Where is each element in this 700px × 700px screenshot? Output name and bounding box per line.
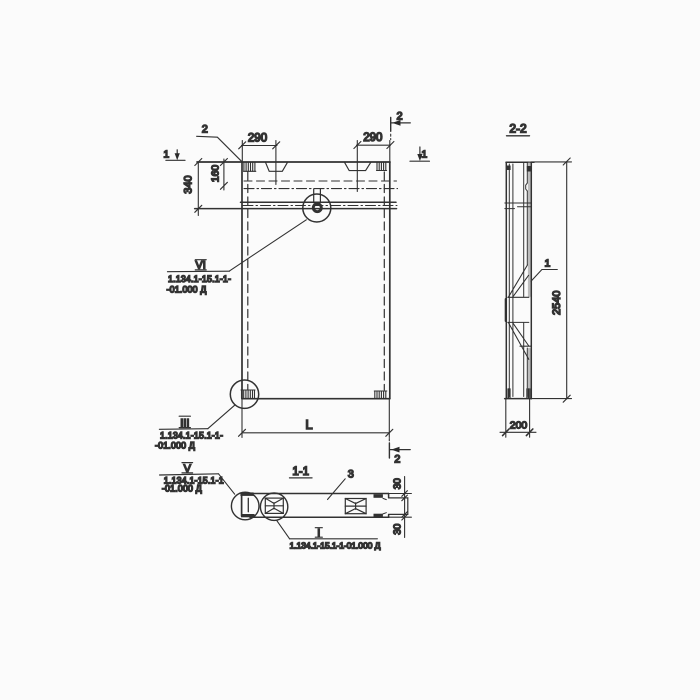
svg-text:290: 290: [363, 132, 382, 144]
svg-text:L: L: [305, 417, 312, 432]
svg-text:1.134.1-15.1-1-01.000 Д: 1.134.1-15.1-1-01.000 Д: [290, 540, 381, 550]
svg-text:30: 30: [392, 478, 403, 490]
svg-text:1: 1: [544, 258, 550, 270]
svg-text:1-1: 1-1: [292, 466, 309, 478]
svg-text:-01.000 Д: -01.000 Д: [167, 285, 207, 295]
svg-text:-01.000 Д: -01.000 Д: [155, 441, 195, 451]
svg-text:2: 2: [394, 454, 400, 466]
svg-text:160: 160: [209, 165, 221, 183]
svg-text:2-2: 2-2: [509, 122, 527, 136]
svg-text:340: 340: [183, 175, 195, 193]
svg-text:290: 290: [248, 133, 267, 145]
svg-text:2: 2: [202, 124, 208, 136]
svg-text:200: 200: [510, 419, 528, 431]
svg-text:1.134.1-15.1-1-: 1.134.1-15.1-1-: [168, 274, 231, 284]
svg-text:2: 2: [396, 111, 402, 123]
svg-text:30: 30: [392, 523, 403, 535]
svg-text:1.134.1-15.1-1-: 1.134.1-15.1-1-: [160, 431, 223, 441]
svg-text:1: 1: [163, 149, 169, 161]
svg-text:-01.000 Д: -01.000 Д: [162, 484, 202, 494]
svg-text:3: 3: [348, 468, 354, 480]
svg-text:2540: 2540: [551, 290, 563, 314]
